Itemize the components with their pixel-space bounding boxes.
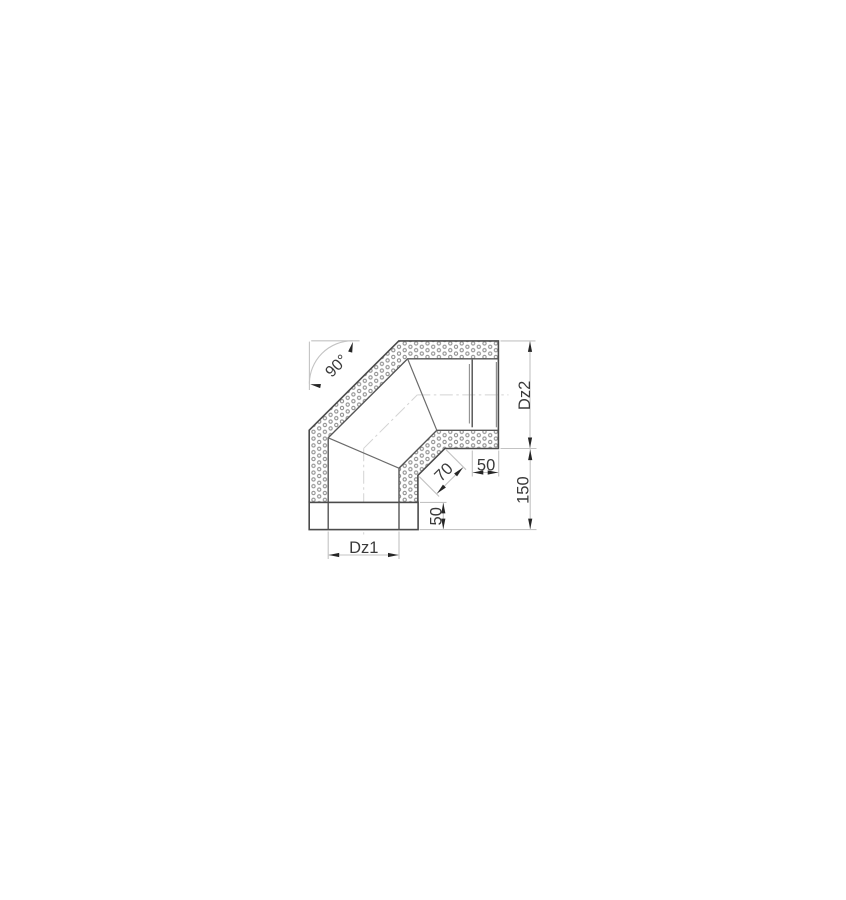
svg-text:Dz2: Dz2 — [516, 381, 534, 410]
svg-text:50: 50 — [427, 507, 445, 525]
svg-text:150: 150 — [515, 476, 533, 504]
svg-text:Dz1: Dz1 — [349, 539, 378, 557]
svg-text:50: 50 — [477, 457, 495, 475]
